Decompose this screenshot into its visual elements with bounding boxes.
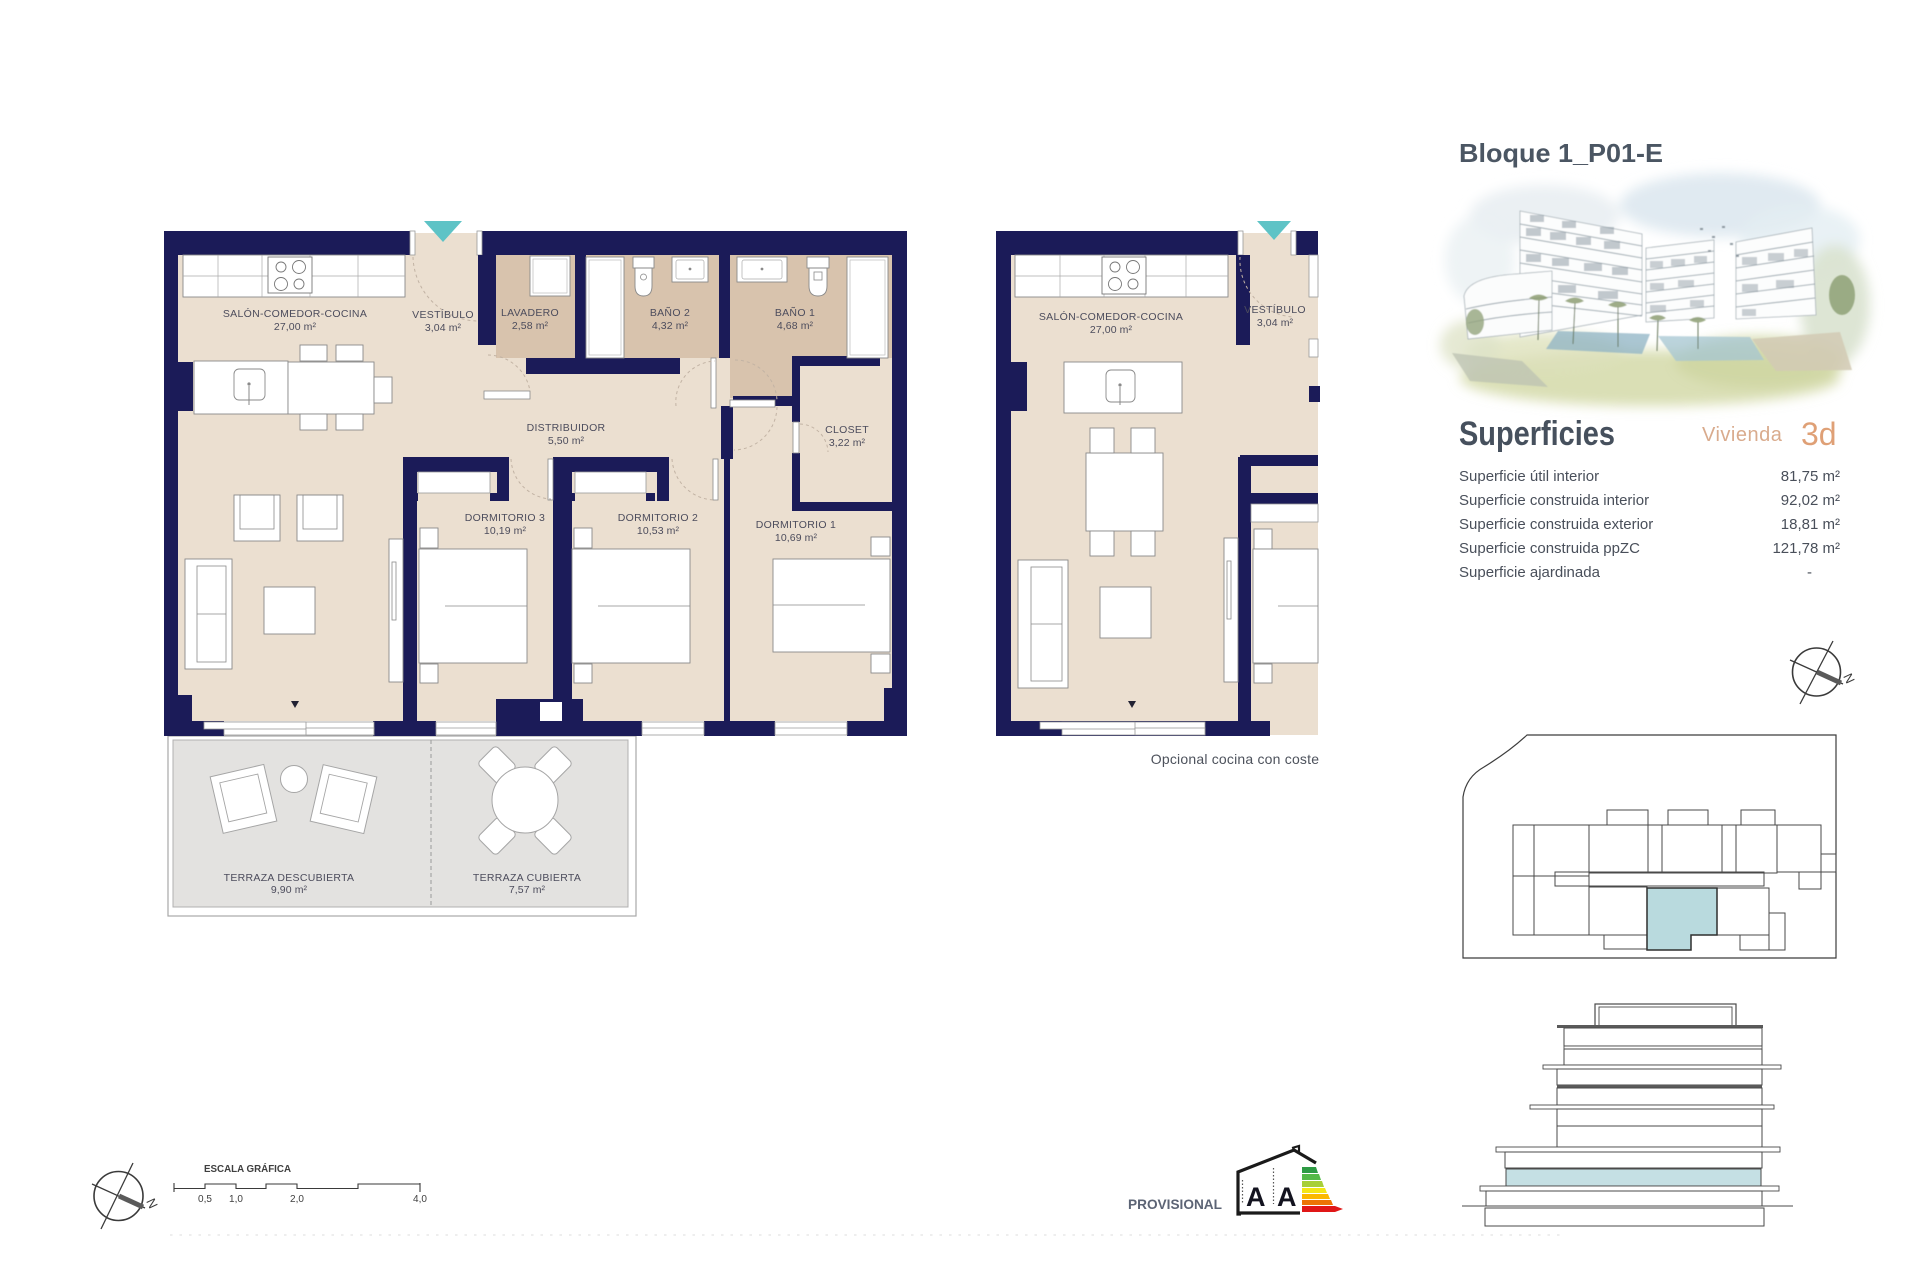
svg-text:SALÓN-COMEDOR-COCINA: SALÓN-COMEDOR-COCINA (223, 307, 367, 320)
svg-text:4,32 m²: 4,32 m² (652, 320, 689, 332)
svg-text:A: A (1246, 1182, 1266, 1212)
svg-text:DORMITORIO 3: DORMITORIO 3 (465, 512, 545, 524)
svg-text:4,0: 4,0 (413, 1194, 427, 1205)
svg-text:Superficie construida exterior: Superficie construida exterior (1459, 516, 1653, 533)
svg-text:DORMITORIO 1: DORMITORIO 1 (756, 519, 836, 531)
svg-text:27,00 m²: 27,00 m² (1090, 324, 1133, 336)
svg-text:10,69 m²: 10,69 m² (775, 532, 818, 544)
svg-text:3,04 m²: 3,04 m² (1257, 317, 1294, 329)
svg-text:LAVADERO: LAVADERO (501, 307, 559, 319)
svg-text:TERRAZA DESCUBIERTA: TERRAZA DESCUBIERTA (224, 872, 355, 884)
svg-text:DORMITORIO 2: DORMITORIO 2 (618, 512, 698, 524)
svg-text:BAÑO 1: BAÑO 1 (775, 306, 815, 319)
svg-text:CLOSET: CLOSET (825, 424, 869, 436)
svg-text:81,75 m²: 81,75 m² (1781, 468, 1840, 485)
svg-text:DISTRIBUIDOR: DISTRIBUIDOR (527, 422, 606, 434)
svg-text:Superficie construida ppZC: Superficie construida ppZC (1459, 540, 1640, 557)
svg-text:9,90 m²: 9,90 m² (271, 884, 308, 896)
svg-text:Bloque 1_P01-E: Bloque 1_P01-E (1459, 138, 1663, 168)
svg-text:Superficie útil interior: Superficie útil interior (1459, 468, 1599, 485)
svg-text:Vivienda: Vivienda (1702, 424, 1783, 446)
svg-text:18,81 m²: 18,81 m² (1781, 516, 1840, 533)
svg-text:121,78 m²: 121,78 m² (1772, 540, 1840, 557)
svg-text:4,68 m²: 4,68 m² (777, 320, 814, 332)
svg-text:Superficie ajardinada: Superficie ajardinada (1459, 564, 1601, 581)
svg-text:TERRAZA CUBIERTA: TERRAZA CUBIERTA (473, 872, 581, 884)
svg-text:BAÑO 2: BAÑO 2 (650, 306, 690, 319)
svg-text:10,53 m²: 10,53 m² (637, 525, 680, 537)
svg-text:2,0: 2,0 (290, 1194, 304, 1205)
svg-text:VESTÍBULO: VESTÍBULO (1244, 303, 1306, 316)
svg-text:ESCALA GRÁFICA: ESCALA GRÁFICA (204, 1162, 291, 1175)
svg-text:SALÓN-COMEDOR-COCINA: SALÓN-COMEDOR-COCINA (1039, 310, 1183, 323)
svg-text:10,19 m²: 10,19 m² (484, 525, 527, 537)
svg-text:3,22 m²: 3,22 m² (829, 437, 866, 449)
svg-text:2,58 m²: 2,58 m² (512, 320, 549, 332)
svg-text:92,02 m²: 92,02 m² (1781, 492, 1840, 509)
svg-text:5,50 m²: 5,50 m² (548, 435, 585, 447)
svg-text:27,00 m²: 27,00 m² (274, 321, 317, 333)
svg-text:Opcional cocina con coste: Opcional cocina con coste (1151, 751, 1319, 767)
svg-text:7,57 m²: 7,57 m² (509, 884, 546, 896)
svg-text:-: - (1807, 564, 1812, 581)
svg-text:PROVISIONAL: PROVISIONAL (1128, 1196, 1222, 1212)
svg-text:Superficie construida interior: Superficie construida interior (1459, 492, 1649, 509)
svg-text:Superficies: Superficies (1459, 415, 1615, 453)
svg-text:1,0: 1,0 (229, 1194, 243, 1205)
svg-text:3,04 m²: 3,04 m² (425, 322, 462, 334)
svg-text:3d: 3d (1801, 416, 1837, 452)
svg-text:A: A (1277, 1182, 1297, 1212)
svg-text:VESTÍBULO: VESTÍBULO (412, 308, 474, 321)
svg-text:0,5: 0,5 (198, 1194, 212, 1205)
